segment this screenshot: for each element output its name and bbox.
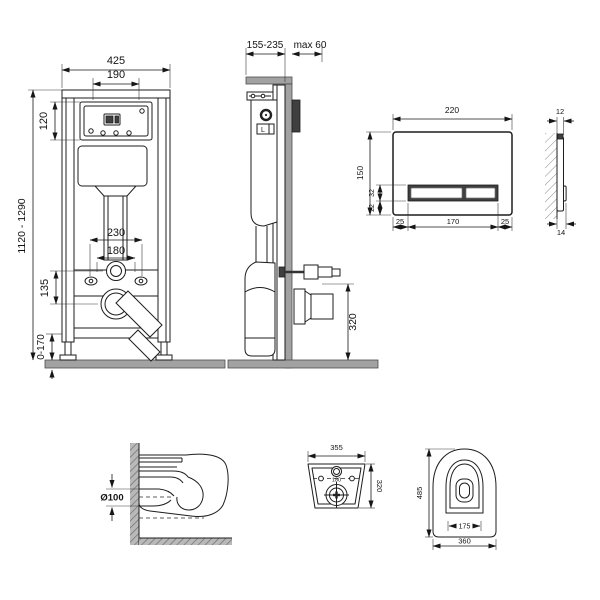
floor-bar [228, 360, 378, 368]
cistern-valve-label: L [261, 127, 265, 134]
dim-button-height: 32 [369, 189, 376, 197]
dim-frame-inner-width: 190 [107, 69, 125, 81]
dim-rear-height: 320 [375, 480, 384, 493]
big-flush-button [411, 188, 462, 198]
dim-rear-width: 355 [330, 443, 343, 452]
dim-depth-range: 155-235 [247, 40, 284, 51]
bowl-section-view: Ø100 [100, 443, 232, 545]
dim-fixing-outer: 230 [107, 227, 125, 239]
frame-right-rail [158, 98, 170, 342]
dim-outlet-height: 320 [347, 313, 359, 331]
drain-flange [294, 289, 305, 324]
flush-plate-side-view: 12 14 [545, 107, 576, 237]
dim-access-height: 120 [38, 112, 50, 130]
dim-plate-height: 150 [355, 166, 365, 180]
frame-left-rail [62, 98, 74, 342]
drain-top [456, 479, 473, 502]
bolt-hole-left [319, 476, 324, 481]
dim-fixing-inner: 180 [107, 245, 125, 257]
frame-side-view: L 155-235 max 60 320 [228, 40, 378, 368]
dim-plate-bottom-thickness: 14 [557, 228, 565, 237]
supply-fitting [304, 265, 318, 279]
left-foot [65, 342, 71, 355]
dim-button-offset: 22 [369, 204, 376, 212]
right-foot [161, 342, 167, 355]
dim-bowl-depth: 485 [415, 487, 424, 500]
flush-plate-front-view: 220 150 32 22 25 170 25 [355, 105, 512, 231]
dim-feet-range: 0-170 [36, 334, 47, 360]
dim-wall-max: max 60 [294, 40, 327, 51]
technical-drawing-page: 425 190 120 1120 - 1290 230 180 135 0-17… [0, 0, 600, 600]
floor-bar [45, 360, 225, 368]
siphon-curve [177, 477, 203, 510]
outlet-elbow [245, 262, 275, 356]
bowl-outer-shell [139, 454, 228, 516]
dim-right-margin: 25 [501, 217, 509, 226]
wall-bar [285, 84, 292, 368]
wall-hatch [545, 133, 557, 219]
dim-bowl-inner-width: 175 [459, 524, 471, 531]
frame-top-bar [62, 90, 170, 98]
bowl-top-view: 485 175 360 [415, 449, 496, 550]
drawing-canvas: 425 190 120 1120 - 1290 230 180 135 0-17… [0, 0, 600, 600]
bolt-hole-right [350, 476, 355, 481]
cistern-valve-box [257, 124, 274, 134]
dim-frame-height-range: 1120 - 1290 [16, 198, 28, 253]
frame-front-view: 425 190 120 1120 - 1290 230 180 135 0-17… [16, 55, 225, 379]
floor-hatch [139, 538, 232, 545]
dim-left-margin: 25 [396, 217, 404, 226]
drain-connector [311, 294, 333, 319]
flush-plate [393, 132, 512, 215]
button-bump [564, 186, 567, 201]
plate-profile [557, 137, 564, 211]
dim-bowl-width: 360 [458, 537, 471, 546]
wall-hatch [130, 443, 139, 545]
dim-button-width: 170 [447, 217, 460, 226]
dim-plate-top-thickness: 12 [556, 107, 564, 116]
dim-drain-diameter: Ø100 [100, 493, 123, 504]
dim-frame-width: 425 [107, 55, 125, 67]
bowl-rear-view: 180 355 320 [308, 443, 384, 508]
cistern-body [78, 146, 147, 186]
wall-mount-block [292, 100, 300, 132]
dim-plate-width: 220 [445, 105, 459, 115]
small-flush-button [466, 188, 495, 198]
dim-outlet-offset: 135 [39, 279, 51, 297]
